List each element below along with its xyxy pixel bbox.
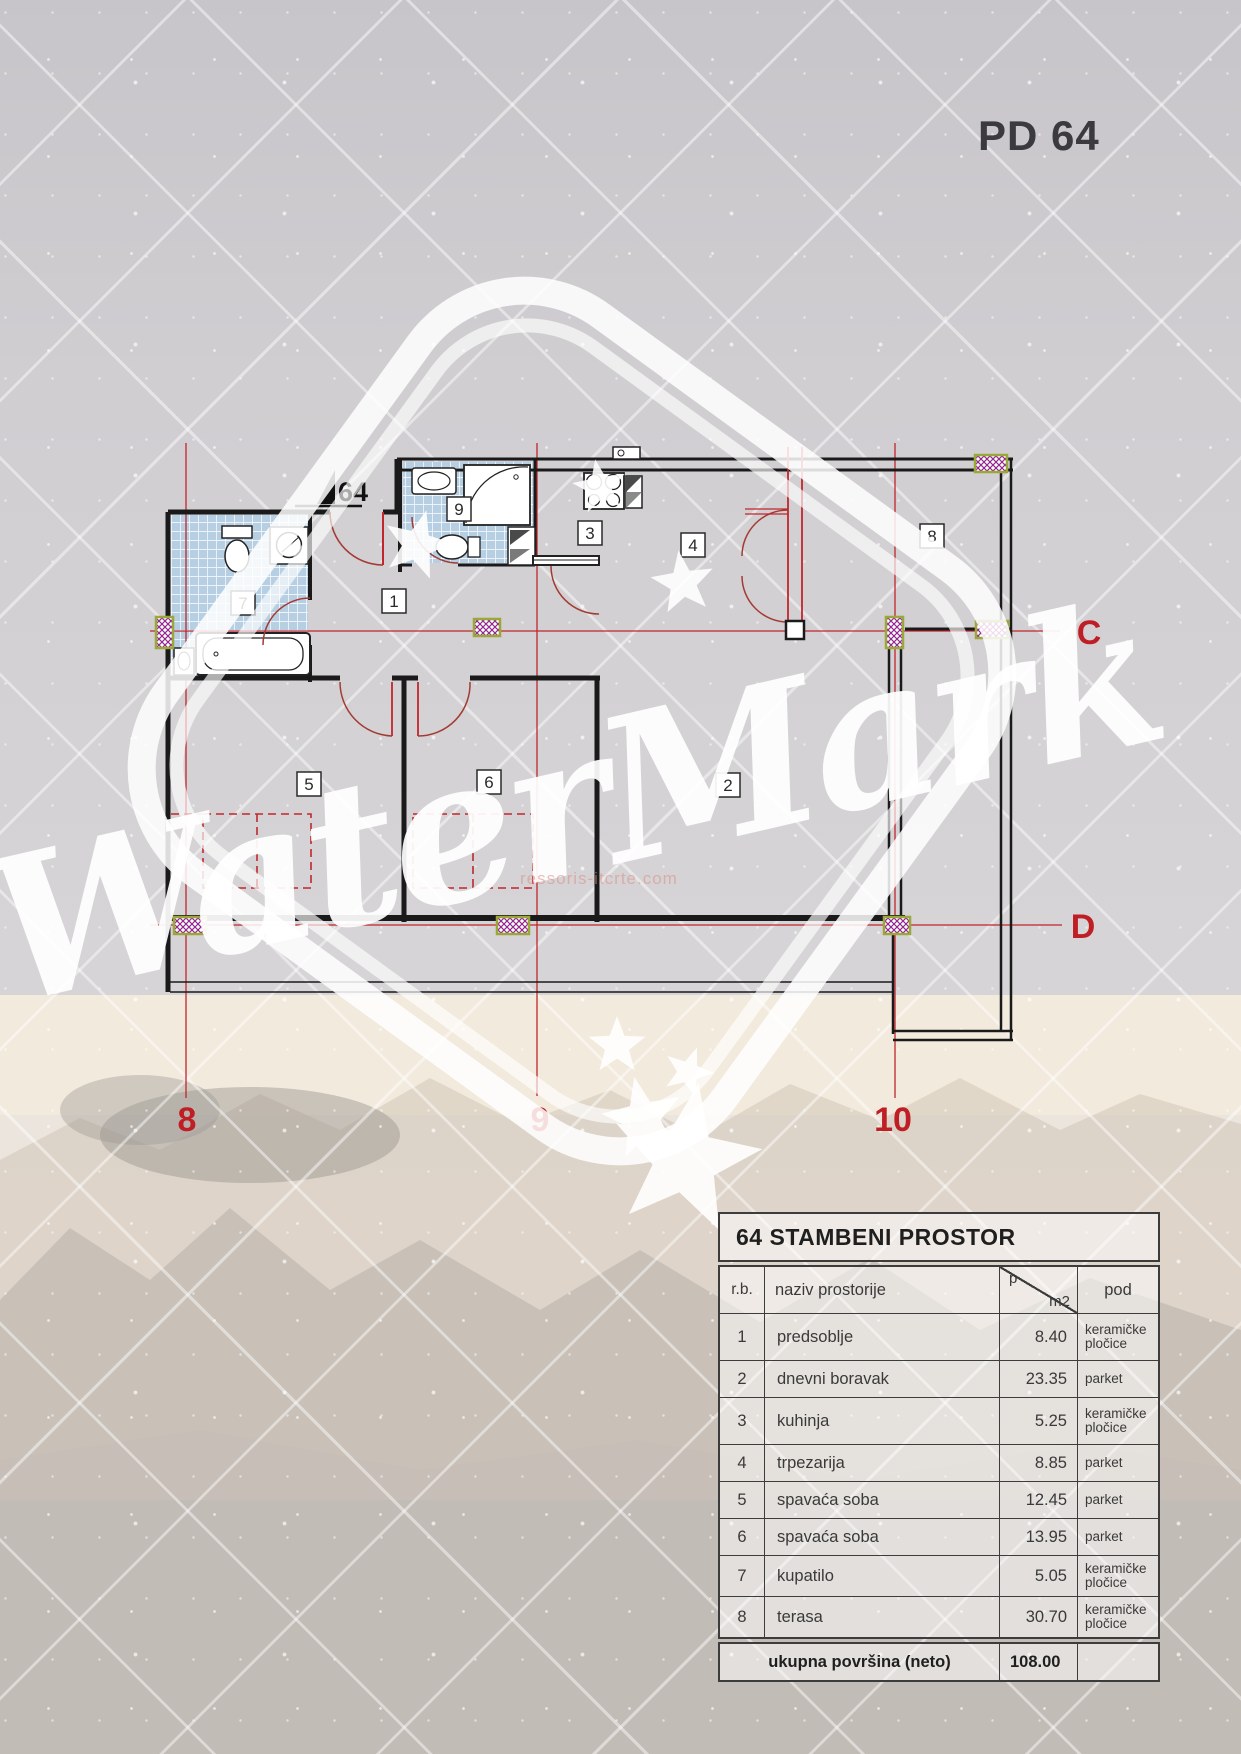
header-rb: r.b. (720, 1267, 765, 1313)
spec-table: 64 STAMBENI PROSTOR r.b. naziv prostorij… (718, 1212, 1160, 1682)
cell-floor: parket (1078, 1482, 1158, 1518)
table-row: 7 kupatilo 5.05 keramičke pločice (720, 1556, 1158, 1597)
cell-name: kuhinja (765, 1398, 1000, 1444)
table-body: r.b. naziv prostorije p m2 pod 1 predsob… (718, 1265, 1160, 1639)
cell-rb: 1 (720, 1314, 765, 1360)
footer-value: 108.00 (1000, 1644, 1078, 1680)
cell-rb: 6 (720, 1519, 765, 1555)
cell-floor: keramičke pločice (1078, 1556, 1158, 1596)
cell-name: terasa (765, 1597, 1000, 1637)
cell-area: 30.70 (1000, 1597, 1078, 1637)
cell-name: trpezarija (765, 1445, 1000, 1481)
table-row: 6 spavaća soba 13.95 parket (720, 1519, 1158, 1556)
cell-area: 5.05 (1000, 1556, 1078, 1596)
footer-label: ukupna površina (neto) (720, 1644, 1000, 1680)
header-area-p: p (1009, 1270, 1017, 1287)
cell-rb: 2 (720, 1361, 765, 1397)
cell-floor: keramičke pločice (1078, 1398, 1158, 1444)
watermark-text: WaterMark (0, 555, 1179, 1050)
cell-floor: parket (1078, 1445, 1158, 1481)
cell-name: dnevni boravak (765, 1361, 1000, 1397)
cell-name: spavaća soba (765, 1482, 1000, 1518)
cell-name: spavaća soba (765, 1519, 1000, 1555)
header-name: naziv prostorije (765, 1267, 1000, 1313)
header-pod: pod (1078, 1267, 1158, 1313)
cell-area: 13.95 (1000, 1519, 1078, 1555)
table-row: 2 dnevni boravak 23.35 parket (720, 1361, 1158, 1398)
cell-area: 23.35 (1000, 1361, 1078, 1397)
cell-rb: 8 (720, 1597, 765, 1637)
cell-floor: parket (1078, 1519, 1158, 1555)
table-row: 8 terasa 30.70 keramičke pločice (720, 1597, 1158, 1637)
header-area: p m2 (1000, 1267, 1078, 1313)
table-row: 4 trpezarija 8.85 parket (720, 1445, 1158, 1482)
cell-area: 8.85 (1000, 1445, 1078, 1481)
cell-name: kupatilo (765, 1556, 1000, 1596)
cell-area: 12.45 (1000, 1482, 1078, 1518)
table-footer: ukupna površina (neto) 108.00 (718, 1642, 1160, 1682)
table-title: 64 STAMBENI PROSTOR (718, 1212, 1160, 1262)
cell-area: 5.25 (1000, 1398, 1078, 1444)
cell-floor: keramičke pločice (1078, 1597, 1158, 1637)
cell-area: 8.40 (1000, 1314, 1078, 1360)
table-row: 3 kuhinja 5.25 keramičke pločice (720, 1398, 1158, 1445)
cell-rb: 4 (720, 1445, 765, 1481)
footer-empty-cell (1078, 1644, 1158, 1680)
table-row: 5 spavaća soba 12.45 parket (720, 1482, 1158, 1519)
cell-floor: parket (1078, 1361, 1158, 1397)
page: { "page": { "title": "PD 64" }, "plan": … (0, 0, 1241, 1754)
table-row: 1 predsoblje 8.40 keramičke pločice (720, 1314, 1158, 1361)
watermark-url: ressoris-itcrte.com (520, 869, 678, 888)
table-header-row: r.b. naziv prostorije p m2 pod (720, 1267, 1158, 1314)
cell-rb: 5 (720, 1482, 765, 1518)
cell-rb: 3 (720, 1398, 765, 1444)
cell-floor: keramičke pločice (1078, 1314, 1158, 1360)
page-title: PD 64 (978, 112, 1100, 160)
cell-rb: 7 (720, 1556, 765, 1596)
header-area-m2: m2 (1049, 1293, 1070, 1310)
cell-name: predsoblje (765, 1314, 1000, 1360)
